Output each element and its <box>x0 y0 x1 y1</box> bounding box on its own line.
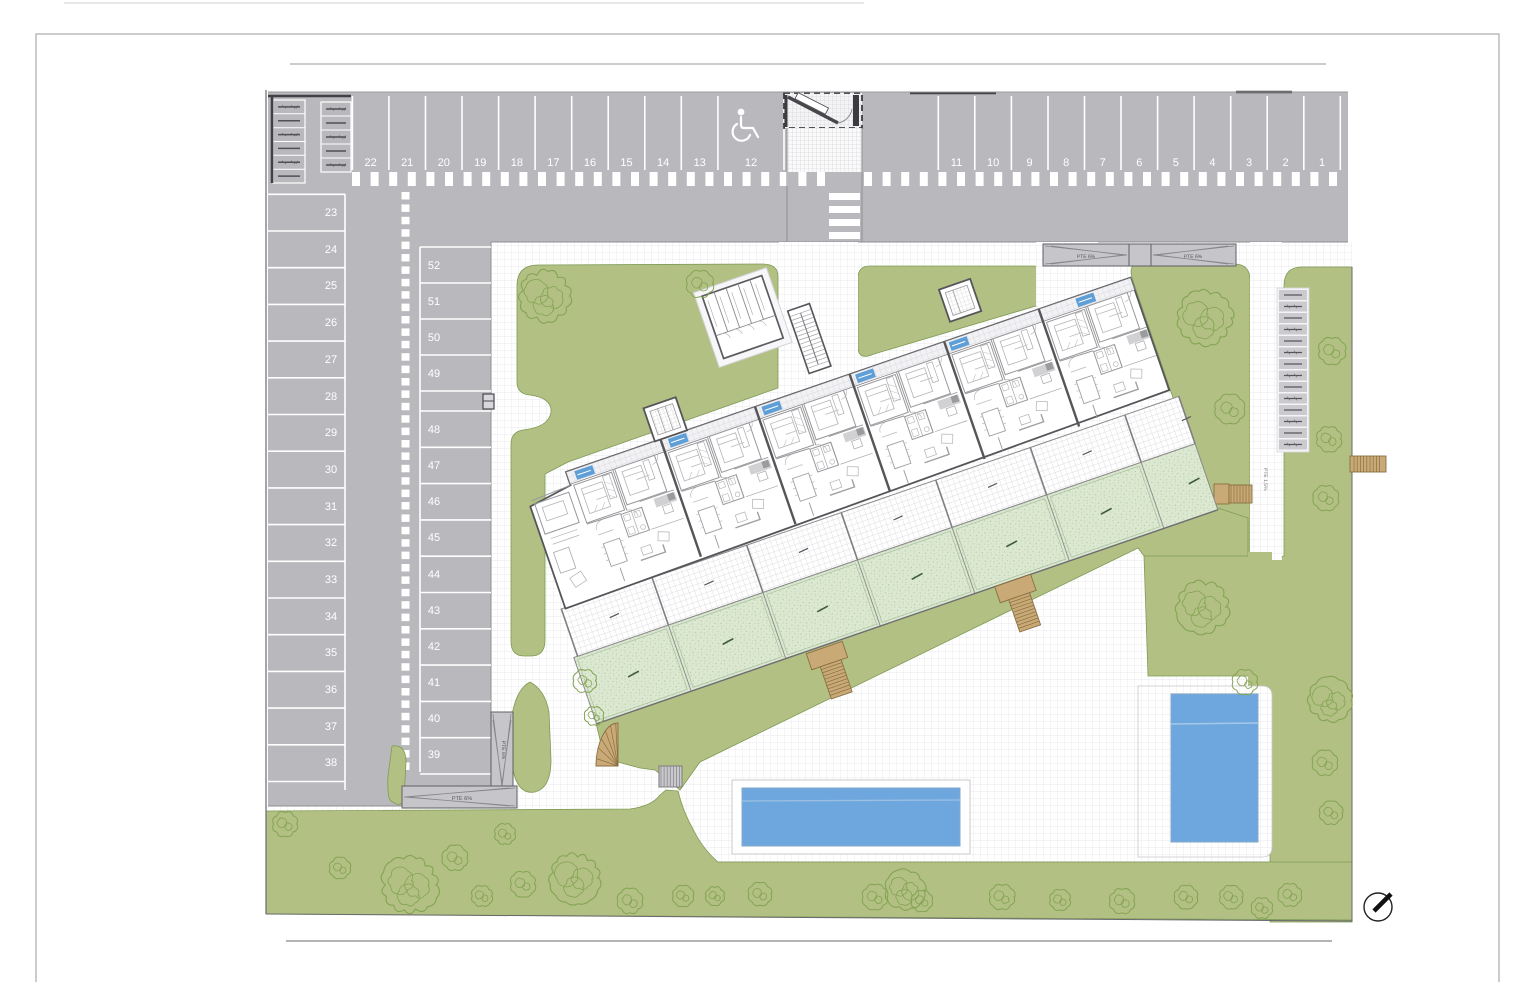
svg-text:48: 48 <box>428 424 440 436</box>
svg-text:6: 6 <box>1136 157 1142 169</box>
svg-text:29: 29 <box>325 427 337 439</box>
svg-text:PTE 6%: PTE 6% <box>500 741 506 760</box>
svg-text:43: 43 <box>428 605 440 617</box>
svg-text:8: 8 <box>1063 157 1069 169</box>
svg-text:PTE 1,5%: PTE 1,5% <box>1262 468 1268 491</box>
svg-text:31: 31 <box>325 501 337 513</box>
svg-text:40: 40 <box>428 713 440 725</box>
svg-text:44: 44 <box>428 569 440 581</box>
svg-text:52: 52 <box>428 260 440 272</box>
svg-text:13: 13 <box>694 157 706 169</box>
svg-text:1: 1 <box>1319 157 1325 169</box>
svg-text:7: 7 <box>1100 157 1106 169</box>
svg-text:35: 35 <box>325 647 337 659</box>
svg-text:14: 14 <box>657 157 669 169</box>
svg-text:2: 2 <box>1282 157 1288 169</box>
svg-text:17: 17 <box>547 157 559 169</box>
svg-text:21: 21 <box>401 157 413 169</box>
svg-text:28: 28 <box>325 391 337 403</box>
svg-text:26: 26 <box>325 317 337 329</box>
svg-text:36: 36 <box>325 684 337 696</box>
svg-text:3: 3 <box>1246 157 1252 169</box>
svg-text:39: 39 <box>428 749 440 761</box>
svg-text:PTE 6%: PTE 6% <box>452 796 472 802</box>
svg-text:46: 46 <box>428 496 440 508</box>
svg-text:45: 45 <box>428 532 440 544</box>
svg-text:PTE 6%: PTE 6% <box>1184 254 1203 260</box>
svg-text:11: 11 <box>951 157 962 169</box>
svg-text:22: 22 <box>364 157 376 169</box>
svg-text:33: 33 <box>325 574 337 586</box>
svg-text:49: 49 <box>428 368 440 380</box>
svg-text:50: 50 <box>428 332 440 344</box>
svg-text:4: 4 <box>1209 157 1215 169</box>
svg-text:18: 18 <box>511 157 523 169</box>
svg-text:16: 16 <box>584 157 596 169</box>
svg-text:PTE 6%: PTE 6% <box>1077 254 1096 260</box>
svg-text:24: 24 <box>325 244 337 256</box>
svg-text:27: 27 <box>325 354 337 366</box>
svg-text:5: 5 <box>1173 157 1179 169</box>
svg-text:47: 47 <box>428 460 440 472</box>
svg-text:38: 38 <box>325 757 337 769</box>
svg-text:19: 19 <box>474 157 486 169</box>
svg-text:25: 25 <box>325 280 337 292</box>
svg-text:9: 9 <box>1027 157 1033 169</box>
svg-text:37: 37 <box>325 721 337 733</box>
svg-text:42: 42 <box>428 641 440 653</box>
svg-text:32: 32 <box>325 537 337 549</box>
svg-text:41: 41 <box>428 677 440 689</box>
svg-text:23: 23 <box>325 207 337 219</box>
svg-text:12: 12 <box>745 157 757 169</box>
svg-text:15: 15 <box>620 157 632 169</box>
svg-text:34: 34 <box>325 611 337 623</box>
svg-text:20: 20 <box>438 157 450 169</box>
svg-text:51: 51 <box>428 296 440 308</box>
svg-text:10: 10 <box>987 157 999 169</box>
svg-text:30: 30 <box>325 464 337 476</box>
